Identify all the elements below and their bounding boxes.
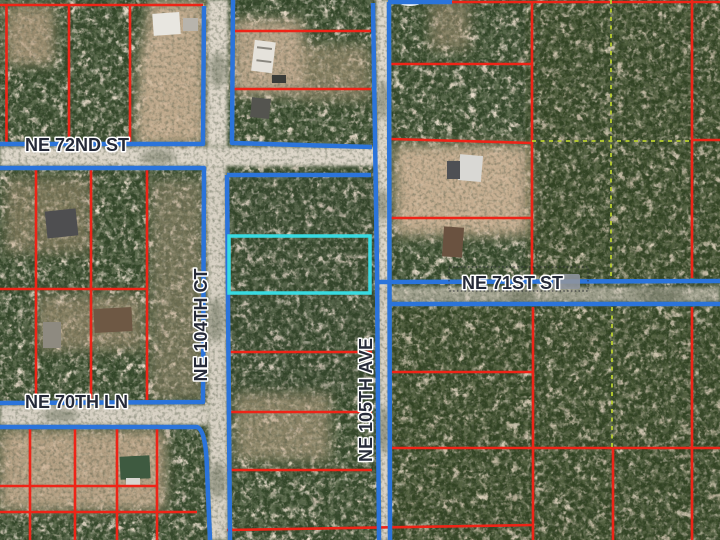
svg-text:NE 71ST ST: NE 71ST ST [462, 273, 563, 293]
svg-text:NE 105TH AVE: NE 105TH AVE [356, 338, 376, 462]
svg-text:NE 70TH LN: NE 70TH LN [25, 392, 128, 412]
svg-text:NE 104TH CT: NE 104TH CT [191, 268, 211, 381]
svg-text:NE 72ND ST: NE 72ND ST [25, 135, 129, 155]
